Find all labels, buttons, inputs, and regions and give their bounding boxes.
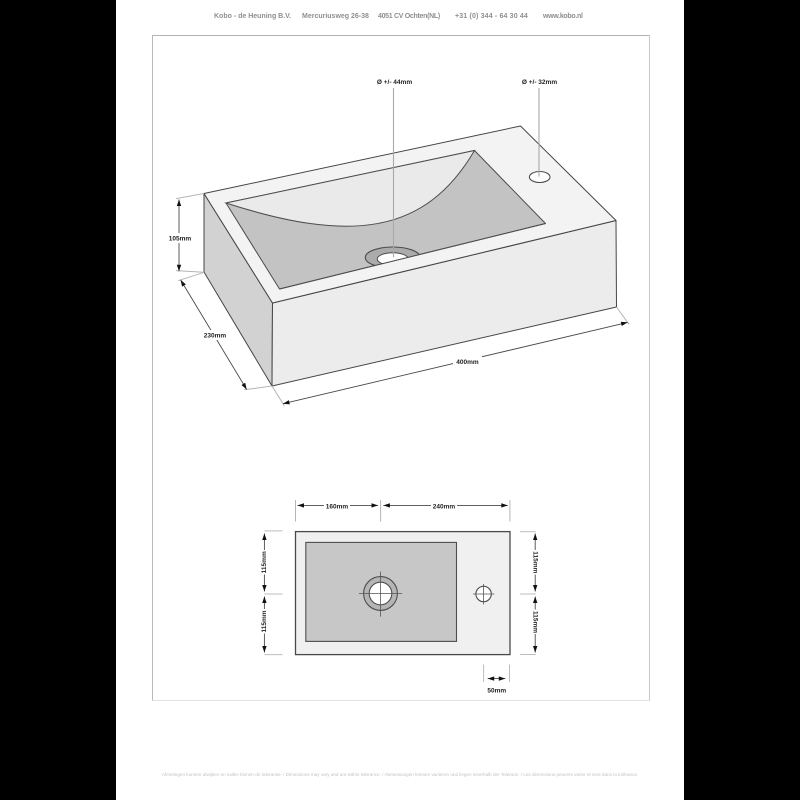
svg-text:115mm: 115mm [531,611,538,633]
svg-text:160mm: 160mm [326,503,349,510]
svg-text:400mm: 400mm [456,359,479,366]
svg-text:115mm: 115mm [531,551,538,573]
svg-text:115mm: 115mm [261,610,268,632]
svg-text:115mm: 115mm [261,551,268,573]
svg-text:Ø +/- 44mm: Ø +/- 44mm [377,79,412,86]
svg-text:230mm: 230mm [204,333,227,340]
svg-text:240mm: 240mm [433,503,456,510]
svg-text:105mm: 105mm [169,236,192,243]
svg-text:50mm: 50mm [487,688,506,695]
svg-text:Ø +/- 32mm: Ø +/- 32mm [522,79,557,86]
